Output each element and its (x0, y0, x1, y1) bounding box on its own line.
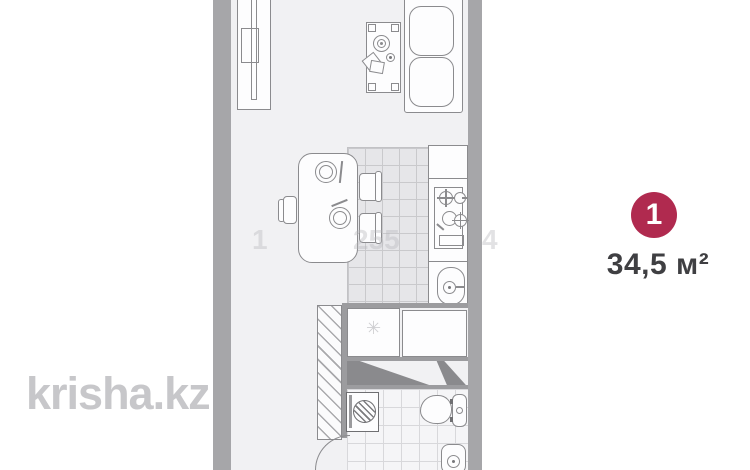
wardrobe-door-panel (241, 28, 259, 63)
area-label: 34,5 м² (578, 248, 738, 282)
sink-drain-icon (443, 281, 456, 294)
sink-drain-icon (447, 455, 460, 468)
toilet-hinge-icon (450, 417, 453, 422)
washer-control-strip (349, 395, 352, 428)
plate-icon (333, 211, 347, 225)
sofa-cushion (409, 57, 454, 107)
unit-number-badge: 1 (631, 192, 677, 238)
decor-item-icon (386, 53, 395, 62)
stove-burner-icon (454, 214, 467, 227)
plate-icon (319, 165, 333, 179)
cup-icon (380, 42, 383, 45)
snowflake-icon: ✳ (347, 318, 400, 339)
pan-handle-icon (462, 197, 468, 199)
chair (283, 196, 297, 224)
bathroom-wall (347, 357, 468, 361)
stove-control-panel (439, 235, 464, 246)
table-leg-icon (391, 24, 399, 32)
table-leg-icon (391, 83, 399, 91)
counter-cabinet (402, 310, 467, 357)
stove-burner-icon (439, 191, 453, 205)
unit-number: 1 (646, 198, 663, 231)
magazine-icon (369, 60, 385, 74)
wall-right (468, 0, 482, 470)
site-watermark: krisha.kz (26, 368, 210, 420)
toilet-hinge-icon (450, 399, 453, 404)
coat-rack (317, 305, 342, 440)
toilet-button-icon (456, 407, 463, 414)
kitchen-counter (428, 145, 468, 179)
wall-left (213, 0, 231, 470)
table-leg-icon (368, 24, 376, 32)
phone-watermark-fragment: 255 (353, 224, 400, 256)
sofa-cushion (409, 6, 454, 56)
floorplan-image: ✳ 1 34,5 м² krisha.kz 1 255 4 (0, 0, 750, 470)
table-leg-icon (368, 83, 376, 91)
phone-watermark-fragment: 4 (482, 224, 498, 256)
phone-watermark-fragment: 1 (252, 224, 268, 256)
toilet-bowl (420, 395, 452, 424)
washer-drum-stripes (354, 401, 375, 422)
washer-drum-icon (353, 400, 376, 423)
faucet-icon (456, 286, 465, 288)
chair-back (375, 171, 382, 202)
